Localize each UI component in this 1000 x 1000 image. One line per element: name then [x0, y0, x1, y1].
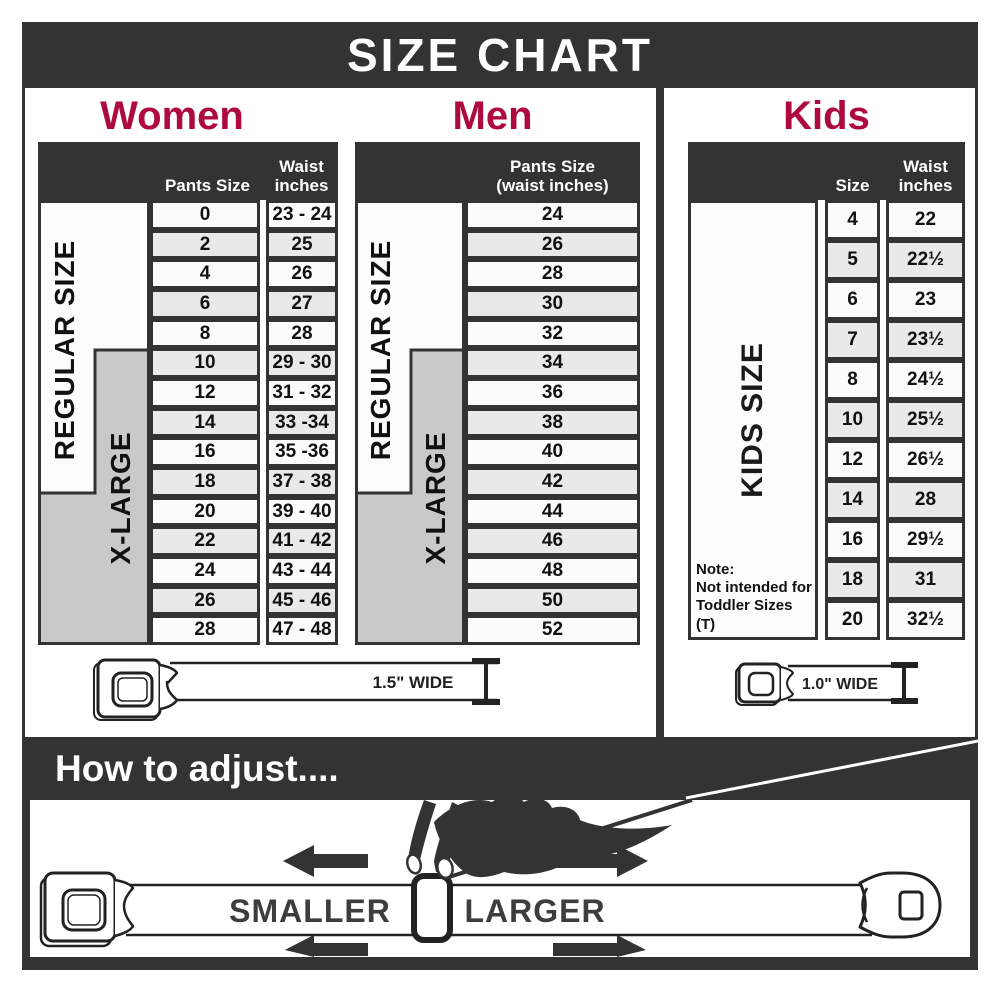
pants-size-cell: 44: [465, 497, 640, 527]
men-table-row: 34: [465, 348, 640, 378]
men-table-row: 46: [465, 526, 640, 556]
women-table-row: 14 33 -34: [150, 408, 338, 438]
kids-size-table: 4 22 5 22½ 6 23 7 23½ 8 24½: [825, 200, 965, 640]
women-table-row: 10 29 - 30: [150, 348, 338, 378]
waist-cell: 37 - 38: [266, 467, 338, 497]
men-table-row: 26: [465, 230, 640, 260]
how-to-adjust-heading: How to adjust....: [55, 748, 339, 790]
pants-size-cell: 48: [465, 556, 640, 586]
waist-cell: 22: [886, 200, 965, 240]
size-cell: 16: [825, 520, 880, 560]
smaller-label: SMALLER: [229, 893, 391, 929]
men-col-pants-size: Pants Size (waist inches): [465, 157, 640, 195]
size-cell: 10: [825, 400, 880, 440]
women-table-row: 22 41 - 42: [150, 526, 338, 556]
pants-size-cell: 52: [465, 615, 640, 645]
kids-table-row: 10 25½: [825, 400, 965, 440]
kids-table-row: 12 26½: [825, 440, 965, 480]
pants-size-cell: 16: [150, 437, 260, 467]
seatbelt-buckle-icon: [94, 660, 177, 720]
kids-col-waist: Waist inches: [886, 157, 965, 195]
pants-size-cell: 4: [150, 259, 260, 289]
seatbelt-buckle-icon: [41, 873, 133, 946]
left-frame-line: [22, 88, 25, 737]
larger-label: LARGER: [464, 893, 605, 929]
women-xlarge-label: X-LARGE: [105, 432, 136, 565]
men-table-row: 52: [465, 615, 640, 645]
page-title: SIZE CHART: [347, 28, 653, 82]
adult-belt-illustration: 1.5" WIDE: [40, 645, 510, 725]
waist-cell: 23: [886, 280, 965, 320]
kids-table-row: 4 22: [825, 200, 965, 240]
men-table-row: 28: [465, 259, 640, 289]
size-cell: 4: [825, 200, 880, 240]
right-frame-line: [975, 88, 978, 737]
women-table-row: 2 25: [150, 230, 338, 260]
men-table-header: Pants Size (waist inches): [355, 142, 640, 200]
waist-cell: 25: [266, 230, 338, 260]
pants-size-cell: 42: [465, 467, 640, 497]
waist-cell: 29 - 30: [266, 348, 338, 378]
waist-cell: 35 -36: [266, 437, 338, 467]
seatbelt-buckle-icon: [736, 664, 793, 705]
men-xlarge-label: X-LARGE: [420, 432, 451, 565]
men-table-row: 32: [465, 319, 640, 349]
kids-heading: Kids: [688, 94, 965, 139]
women-table-row: 26 45 - 46: [150, 586, 338, 616]
kids-table-header: Size Waist inches: [688, 142, 965, 200]
pants-size-cell: 40: [465, 437, 640, 467]
waist-cell: 23 - 24: [266, 200, 338, 230]
women-col-pants-size: Pants Size: [150, 176, 265, 195]
pants-size-cell: 32: [465, 319, 640, 349]
kids-table-row: 8 24½: [825, 360, 965, 400]
pants-size-cell: 0: [150, 200, 260, 230]
men-table-row: 40: [465, 437, 640, 467]
size-cell: 20: [825, 600, 880, 640]
pants-size-cell: 22: [150, 526, 260, 556]
panel-divider: [656, 88, 664, 737]
men-heading: Men: [350, 94, 635, 139]
kids-size-label: KIDS SIZE: [736, 342, 770, 498]
pants-size-cell: 24: [150, 556, 260, 586]
men-size-table: 24 26 28 30 32 34 36: [465, 200, 640, 645]
adult-belt-width-label: 1.5" WIDE: [373, 673, 454, 692]
women-regular-size-label: REGULAR SIZE: [49, 240, 80, 460]
waist-cell: 28: [266, 319, 338, 349]
width-indicator-icon: [891, 665, 918, 701]
kids-col-size: Size: [825, 176, 880, 195]
kids-table-row: 18 31: [825, 560, 965, 600]
men-table-row: 42: [465, 467, 640, 497]
women-table-header: Pants Size Waist inches: [38, 142, 338, 200]
size-cell: 6: [825, 280, 880, 320]
pants-size-cell: 24: [465, 200, 640, 230]
size-cell: 18: [825, 560, 880, 600]
pants-size-cell: 28: [465, 259, 640, 289]
waist-cell: 26: [266, 259, 338, 289]
men-table-row: 50: [465, 586, 640, 616]
pants-size-cell: 38: [465, 408, 640, 438]
pants-size-cell: 14: [150, 408, 260, 438]
size-cell: 12: [825, 440, 880, 480]
pants-size-cell: 2: [150, 230, 260, 260]
women-table-row: 18 37 - 38: [150, 467, 338, 497]
men-table-row: 44: [465, 497, 640, 527]
women-table-row: 16 35 -36: [150, 437, 338, 467]
women-table-row: 12 31 - 32: [150, 378, 338, 408]
pants-size-cell: 46: [465, 526, 640, 556]
size-cell: 14: [825, 480, 880, 520]
belt-adjuster-icon: [414, 876, 450, 940]
pants-size-cell: 8: [150, 319, 260, 349]
waist-cell: 26½: [886, 440, 965, 480]
waist-cell: 43 - 44: [266, 556, 338, 586]
waist-cell: 47 - 48: [266, 615, 338, 645]
waist-cell: 45 - 46: [266, 586, 338, 616]
pants-size-cell: 34: [465, 348, 640, 378]
pants-size-cell: 18: [150, 467, 260, 497]
waist-cell: 31 - 32: [266, 378, 338, 408]
men-table-row: 38: [465, 408, 640, 438]
seatbelt-latch-icon: [860, 873, 940, 937]
kids-table-row: 6 23: [825, 280, 965, 320]
size-chart-page: SIZE CHART Women Men Kids Pants Size Wai…: [0, 0, 1000, 1000]
kids-table-row: 5 22½: [825, 240, 965, 280]
pants-size-cell: 50: [465, 586, 640, 616]
women-table-row: 6 27: [150, 289, 338, 319]
size-cell: 7: [825, 320, 880, 360]
women-table-row: 24 43 - 44: [150, 556, 338, 586]
left-arrow-top-icon: [283, 845, 368, 877]
right-arrow-bottom-icon: [553, 935, 646, 957]
size-cell: 5: [825, 240, 880, 280]
kids-size-category-box: KIDS SIZE Note: Not intended for Toddler…: [688, 200, 818, 640]
women-table-row: 8 28: [150, 319, 338, 349]
waist-cell: 27: [266, 289, 338, 319]
waist-cell: 33 -34: [266, 408, 338, 438]
waist-cell: 31: [886, 560, 965, 600]
women-table-row: 4 26: [150, 259, 338, 289]
women-table-row: 28 47 - 48: [150, 615, 338, 645]
pants-size-cell: 30: [465, 289, 640, 319]
men-size-category-diagram: REGULAR SIZE X-LARGE: [355, 200, 465, 645]
waist-cell: 25½: [886, 400, 965, 440]
bottom-border-bar: [22, 957, 978, 970]
women-size-table: 0 23 - 24 2 25 4 26 6 27 8 28: [150, 200, 338, 645]
kids-belt-width-label: 1.0" WIDE: [802, 676, 878, 693]
women-size-category-diagram: REGULAR SIZE X-LARGE: [38, 200, 150, 645]
kids-note: Note: Not intended for Toddler Sizes (T): [696, 561, 815, 634]
waist-cell: 32½: [886, 600, 965, 640]
waist-cell: 23½: [886, 320, 965, 360]
kids-table-row: 14 28: [825, 480, 965, 520]
waist-cell: 22½: [886, 240, 965, 280]
adjustment-illustration: SMALLER LARGER: [22, 800, 978, 957]
kids-table-row: 7 23½: [825, 320, 965, 360]
pants-size-cell: 10: [150, 348, 260, 378]
pants-size-cell: 20: [150, 497, 260, 527]
pants-size-cell: 26: [150, 586, 260, 616]
waist-cell: 24½: [886, 360, 965, 400]
pants-size-cell: 6: [150, 289, 260, 319]
men-regular-size-label: REGULAR SIZE: [365, 240, 396, 460]
pants-size-cell: 12: [150, 378, 260, 408]
women-col-waist: Waist inches: [265, 157, 338, 195]
pulled-strap-over-bar: [660, 737, 978, 800]
kids-table-row: 20 32½: [825, 600, 965, 640]
kids-belt-illustration: 1.0" WIDE: [733, 652, 973, 722]
waist-cell: 39 - 40: [266, 497, 338, 527]
pants-size-cell: 26: [465, 230, 640, 260]
men-table-row: 36: [465, 378, 640, 408]
women-table-row: 20 39 - 40: [150, 497, 338, 527]
waist-cell: 41 - 42: [266, 526, 338, 556]
women-table-row: 0 23 - 24: [150, 200, 338, 230]
men-table-row: 48: [465, 556, 640, 586]
waist-cell: 29½: [886, 520, 965, 560]
pants-size-cell: 28: [150, 615, 260, 645]
waist-cell: 28: [886, 480, 965, 520]
kids-table-row: 16 29½: [825, 520, 965, 560]
men-table-row: 30: [465, 289, 640, 319]
women-heading: Women: [22, 94, 322, 139]
title-bar: SIZE CHART: [22, 22, 978, 88]
pants-size-cell: 36: [465, 378, 640, 408]
men-table-row: 24: [465, 200, 640, 230]
size-cell: 8: [825, 360, 880, 400]
